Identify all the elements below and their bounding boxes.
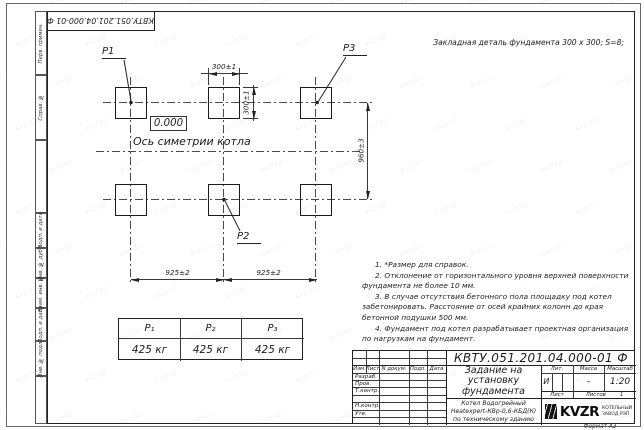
point-label-p3: Р3 [343,43,367,56]
tb-sheet-label: Лист [541,391,573,398]
tb-product: Котел Водогрейный Heatexpert-КВр-0,6-КБД… [446,398,541,425]
doc-number-box: КВТУ.051.201.04.000-01 Ф [47,11,155,31]
load-table: Р₁ Р₂ Р₃ 425 кг 425 кг 425 кг [118,318,303,360]
foundation-pad-top-right [300,87,332,119]
tb-stat-header-masshtab: Масштаб [604,365,636,373]
dim-label-925-right: 925±2 [241,268,296,277]
kvzr-logo-text: KVZR [560,404,599,420]
drawing-sheet: kvzr.kzkvzr.kzkvzr.kzkvzr.kzkvzr.kzkvzr.… [0,0,644,430]
dim-arrow [131,278,139,282]
dim-arrow [216,278,224,282]
tb-row-nkontr: Н.контр. [353,402,381,410]
dim-arrow [309,278,317,282]
side-box-vzam-inv: Взам. инв. № [35,278,47,308]
side-box-podp-data-2: Подп. и дата [35,308,47,341]
tb-line [552,373,553,392]
dim-line-960 [367,103,368,199]
side-box-podp-data-1: Подп. и дата [35,213,47,248]
tb-line [562,373,563,392]
tb-doc-number: КВТУ.051.201.04.000-01 Ф [446,351,636,365]
tb-scale-value: 1:20 [604,373,636,392]
notes-block: 1. *Размер для справок. 2. Отклонение от… [362,260,634,345]
tb-line [353,358,446,359]
tb-row-tkontr: Т.контр. [353,387,381,395]
side-box-empty-2 [35,376,47,424]
tb-sheets-value: 1 [620,392,623,398]
foundation-pad-top-left [115,87,147,119]
elevation-value: 0.000 [154,118,183,129]
tb-stat-header-massa: Масса [573,365,604,373]
dim-arrow [224,278,232,282]
tb-logo-area: KVZR КОТЕЛЬНЫЙ ЗАВОД РЭП [541,398,636,425]
doc-number-rotated: КВТУ.051.201.04.000-01 Ф [47,16,154,25]
title-block: КВТУ.051.201.04.000-01 Ф Изм. Лист N док… [352,350,635,424]
point-label-p1: Р1 [102,46,126,59]
dim-arrow [232,72,240,76]
dim-arrow [366,103,370,111]
side-box-sprav-n: Справ. № [35,75,47,140]
side-box-empty-1 [35,140,47,213]
load-table-header-p3: Р₃ [241,319,304,338]
dim-label-top-300: 300±1 [204,62,244,71]
load-table-value-p3: 425 кг [241,338,304,361]
tb-line [353,417,446,418]
point-label-p2: Р2 [237,231,261,244]
symmetry-axis-line [96,151,362,152]
format-label: Формат А3 [560,424,640,430]
tb-title: Задание на установку фундамента [446,365,541,398]
note-1: 1. *Размер для справок. [362,260,634,271]
side-box-inv-podl: Инв. № подл. [35,341,47,376]
symmetry-axis-label: Ось симетрии котла [133,135,251,148]
dim-arrow [252,87,256,95]
tb-sheets-label: Листов [586,392,606,398]
foundation-pad-bottom-left [115,184,147,216]
note-2: 2. Отклонение от горизонтального уровня … [362,271,634,292]
load-table-value-p1: 425 кг [119,338,180,361]
foundation-pad-top-mid [208,87,240,119]
foundation-pad-bottom-right [300,184,332,216]
tb-rev-header-ndoc: N докум. [379,365,409,373]
kvzr-logo-caption: КОТЕЛЬНЫЙ ЗАВОД РЭП [602,406,632,417]
embed-plate-note: Закладная деталь фундамента 300 х 300; S… [424,38,624,47]
tb-lit-value: И [541,373,552,392]
dim-arrow [366,191,370,199]
load-table-value-p2: 425 кг [180,338,241,361]
dim-arrow [252,111,256,119]
dim-arrow [209,72,217,76]
load-table-header-p2: Р₂ [180,319,241,338]
note-4: 4. Фундамент под котел разрабатывает про… [362,324,634,345]
side-box-perv-primen: Перв. примен. [35,11,47,75]
tb-row-prov: Пров. [353,380,381,387]
tb-stat-header-lit: Лит. [541,365,573,373]
tb-row-razrab: Разраб. [353,373,381,380]
tb-rev-header-list: Лист [366,365,379,373]
side-box-inv-dubl: Инв. № дубл. [35,248,47,278]
tb-row-utv: Утв. [353,410,381,417]
tb-mass-value: – [573,373,604,392]
tb-rev-header-data: Дата [427,365,446,373]
note-3: 3. В случае отсутствия бетонного пола пл… [362,292,634,324]
tb-rev-header-izm: Изм. [353,365,366,373]
load-table-header-p1: Р₁ [119,319,180,338]
dim-label-960: 960±3 [357,131,366,171]
tb-rev-header-podp: Подп. [409,365,427,373]
tb-line [409,351,410,425]
tb-row-empty [353,395,381,402]
dim-label-side-300: 300±1 [242,84,251,122]
tb-sheets-cell: Листов 1 [573,391,636,398]
dim-label-925-left: 925±2 [150,268,205,277]
foundation-pad-bottom-mid [208,184,240,216]
elevation-box: 0.000 [150,116,187,131]
tb-line [427,351,428,425]
kvzr-logo-icon [545,404,557,419]
